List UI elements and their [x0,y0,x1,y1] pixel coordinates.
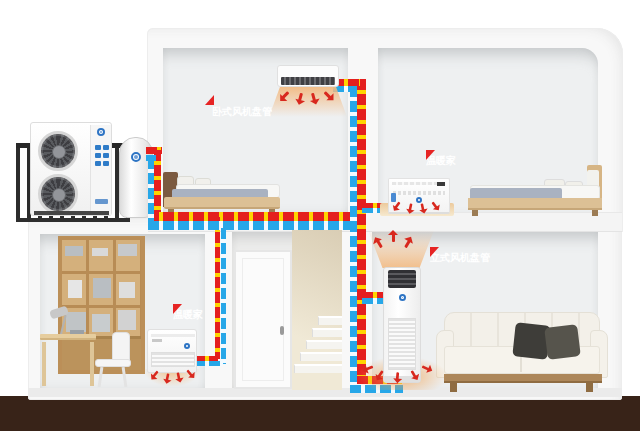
callout-bedroom-console-text: 温暖家 [426,152,456,169]
callout-study-console-text: 温暖家 [173,306,203,323]
shelf-item [93,278,111,298]
ceiling-fan-coil-unit [277,65,339,87]
fan-coil-louver-grille [388,318,416,370]
ground-strip [0,396,640,431]
pipe-supply-study-branch [215,217,220,359]
tank-logo-icon [131,152,141,162]
heat-pump-outdoor-unit [30,122,112,216]
shelf-item [68,280,82,298]
stair-step [294,364,342,373]
shelf-item [118,310,136,330]
pipe-supply-main-run [148,212,364,221]
pipe-return-study-stub [194,361,223,366]
shelf-item [92,248,108,256]
desk-top [40,334,96,340]
hallway-door [234,250,292,389]
callout-ceiling-fan-coil-text: 卧式风机盘管 [212,103,272,120]
panel-button [95,145,101,150]
bed-frame [164,197,280,209]
shelf-item [118,244,137,256]
outdoor-fan-bottom-icon [38,174,78,214]
shelf-item [119,282,135,298]
vertical-fan-coil-unit [383,267,421,383]
door-handle-icon [280,326,284,335]
chair-leg [122,367,128,387]
stair-step [312,328,342,337]
panel-button [95,153,101,158]
stair-step [300,352,342,361]
console-mid-grille [393,191,445,195]
panel-brand-mark [95,199,108,204]
console-control-dots [152,339,162,342]
panel-button [95,161,101,166]
console-display [437,182,445,186]
pipe-return-drop-left [148,158,154,222]
pipe-return-main-run [148,221,354,230]
panel-button [103,153,109,158]
console-logo-icon [416,197,422,203]
pipe-return-center-riser [350,86,357,389]
fan-coil-grille [281,77,335,85]
bed-leg [472,210,478,216]
console-top-bar [151,334,195,337]
panel-button [103,145,109,150]
door-panel [242,258,284,381]
chair-back [112,332,130,362]
pipe-supply-center-riser [357,79,366,380]
outdoor-unit-logo-icon [97,128,105,136]
bedroom2-bed [468,162,602,216]
sofa [436,308,608,392]
outdoor-fan-top-icon [38,131,78,171]
desk [40,306,98,388]
shelf-item [65,246,83,256]
sofa-pillow-dark [544,324,581,360]
chair [93,332,135,388]
panel-button [103,161,109,166]
stair-step [318,316,342,325]
hvac-house-diagram: 卧式风机盘管 温暖家 温暖家 立式风机盘管 [0,0,640,431]
warm-air-arrow-icon [396,372,399,379]
outdoor-unit-base [34,211,109,215]
desk-leg [42,342,46,386]
staircase [292,228,342,390]
sofa-leg [450,383,457,392]
fan-coil-inlet-grille [388,270,416,288]
chair-seat [95,359,131,367]
console-side-tag [391,193,396,202]
sofa-leg [586,383,593,392]
pipe-return-study-branch [221,228,226,364]
sofa-wood-base [444,374,602,383]
chair-leg [98,367,104,387]
fan-coil-logo-icon [399,294,406,301]
bedroom1-bed [163,170,281,216]
bed-frame [468,198,602,210]
callout-floor-fan-coil-text: 立式风机盘管 [430,249,490,266]
console-louver-grille [151,352,195,367]
study-console-unit [147,329,197,373]
warm-air-arrow-icon [392,234,395,242]
console-logo-icon [184,343,190,349]
stair-step [306,340,342,349]
bed-leg [592,210,598,216]
